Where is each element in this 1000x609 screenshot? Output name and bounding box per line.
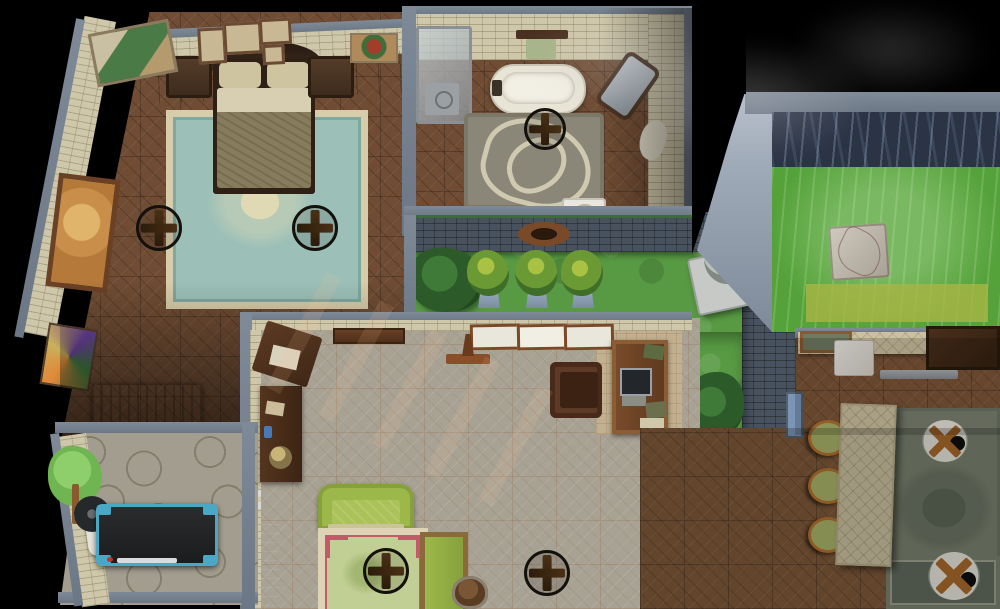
ceiling-light-1[interactable]	[922, 420, 968, 462]
wall-shelf[interactable]	[333, 328, 405, 344]
light-shade	[950, 436, 965, 451]
potted-topiary-2[interactable]	[514, 250, 558, 310]
treadmill-rail	[117, 558, 177, 563]
rug-floral-corner-left	[327, 537, 348, 558]
desk-book-1	[643, 344, 665, 361]
clawfoot-bathtub[interactable]	[490, 64, 586, 114]
desk-chair[interactable]	[550, 362, 602, 418]
topiary-bush	[561, 250, 603, 296]
tub-basin	[501, 72, 575, 104]
tub-faucet-icon	[492, 80, 502, 96]
globe	[269, 446, 292, 469]
bed-sheet-fold	[217, 88, 311, 112]
gallery-frame-cluster[interactable]	[197, 18, 295, 69]
small-frame	[223, 21, 263, 55]
potted-topiary-1[interactable]	[466, 250, 510, 310]
towel-bar	[516, 30, 568, 39]
kitchen-island[interactable]	[835, 403, 897, 567]
treadmill-pad-tl	[97, 505, 111, 515]
pool-dark-water[interactable]	[772, 112, 1000, 167]
pool-submerged-ledge	[806, 284, 988, 322]
game-viewport	[0, 0, 1000, 609]
dining-rug-medallion	[894, 463, 994, 553]
console-table[interactable]	[260, 386, 302, 482]
garden-window[interactable]	[786, 392, 803, 438]
treadmill-stop-button	[107, 557, 113, 562]
living-ceiling-fan-1[interactable]	[363, 548, 409, 594]
window-3[interactable]	[564, 324, 614, 351]
bed-pillow-right	[267, 62, 309, 88]
wall-lantern[interactable]	[518, 222, 570, 246]
ceiling-light-2[interactable]	[928, 552, 980, 600]
green-towel	[526, 39, 556, 59]
steam-plume-3	[790, 0, 990, 100]
treadmill-pad-tr	[203, 505, 217, 515]
kitchen-wall-shelf[interactable]	[880, 370, 958, 379]
chair-seat	[560, 372, 598, 408]
potted-topiary-3[interactable]	[560, 250, 604, 310]
nightstand-right[interactable]	[308, 56, 354, 98]
green-sofa[interactable]	[318, 484, 414, 530]
night-gap-bathroom-pool	[692, 0, 746, 94]
white-appliance[interactable]	[834, 340, 874, 376]
writing-desk[interactable]	[612, 340, 668, 434]
living-north-wall-face	[242, 320, 692, 331]
bedroom-bathroom-wall	[402, 6, 416, 236]
gym-north-wall	[55, 422, 258, 433]
treadmill[interactable]	[96, 504, 218, 566]
small-frame	[259, 18, 292, 46]
stone-crack-lines	[831, 223, 889, 280]
potion-bottle	[264, 426, 272, 438]
light-shade	[960, 572, 976, 588]
window-2[interactable]	[517, 324, 567, 351]
bathroom-ceiling-fan[interactable]	[524, 108, 566, 150]
drafting-paper	[269, 345, 301, 371]
desk-book-2	[645, 401, 667, 419]
topiary-bush	[515, 250, 557, 296]
gym-east-wall	[242, 422, 255, 609]
dark-cabinet[interactable]	[926, 326, 1000, 370]
pool-stone-platform[interactable]	[828, 223, 890, 281]
barrel-bin[interactable]	[452, 576, 488, 609]
redhead-portrait[interactable]	[350, 33, 398, 63]
valet-stand[interactable]	[446, 342, 490, 368]
shower-drain-icon	[435, 91, 453, 109]
living-ceiling-fan-2[interactable]	[524, 550, 570, 596]
shower-stall[interactable]	[416, 26, 472, 124]
pool-coping-north	[745, 92, 1000, 114]
console-papers	[265, 401, 285, 417]
bedroom-ceiling-fan-right[interactable]	[292, 205, 338, 251]
computer-monitor	[620, 368, 652, 396]
colorful-abstract-painting[interactable]	[39, 322, 98, 391]
treadmill-pad-br	[203, 555, 217, 565]
computer-keyboard	[622, 396, 646, 406]
sofa-seat	[332, 500, 400, 524]
small-frame	[262, 44, 285, 65]
towel-rack[interactable]	[516, 30, 568, 60]
topiary-bush	[467, 250, 509, 296]
bedroom-ceiling-fan-left[interactable]	[136, 205, 182, 251]
